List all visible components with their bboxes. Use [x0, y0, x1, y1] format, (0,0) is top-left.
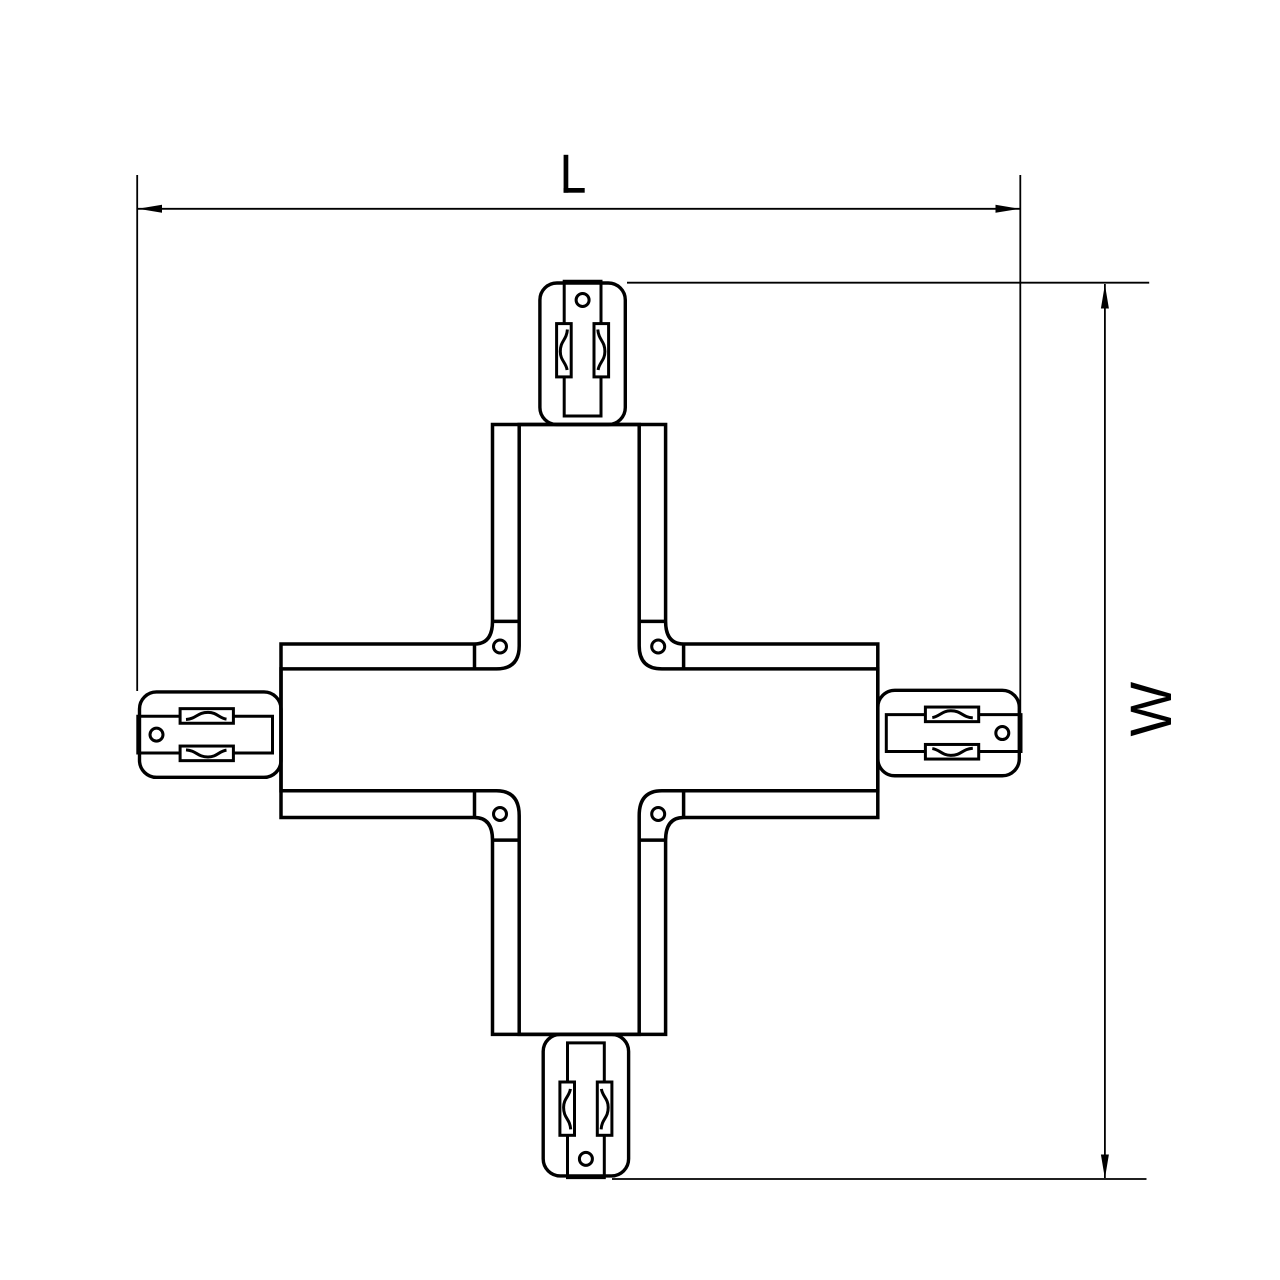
svg-text:W: W	[1119, 682, 1184, 737]
